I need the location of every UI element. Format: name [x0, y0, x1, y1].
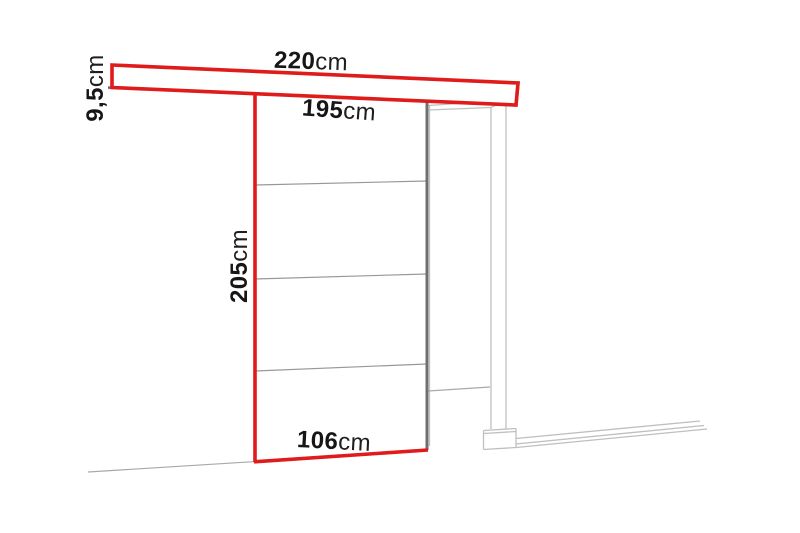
- frame-plinth-top: [484, 429, 517, 431]
- dimension-diagram: 220cm 9,5cm 195cm 205cm 106cm: [0, 0, 800, 533]
- dimension-label-upper-width: 195cm: [301, 96, 377, 125]
- baseboard-mid-line: [516, 426, 704, 445]
- baseboard-bottom-line: [516, 429, 707, 448]
- dimension-value: 195: [301, 94, 344, 124]
- floor-line-left: [88, 462, 256, 473]
- frame-plinth-step: [484, 432, 516, 434]
- diagram-drawing: [0, 0, 800, 533]
- dimension-value: 9,5: [82, 87, 109, 122]
- dimension-unit: cm: [82, 54, 109, 87]
- door-frame: [428, 101, 707, 450]
- dimension-value: 106: [296, 426, 339, 455]
- dimension-unit: cm: [338, 428, 372, 457]
- baseboard-top-line: [516, 421, 700, 439]
- dimension-unit: cm: [342, 97, 377, 126]
- frame-header-inner-line: [428, 108, 491, 111]
- floor-line-opening: [428, 387, 490, 391]
- dimension-unit: cm: [226, 229, 253, 262]
- frame-plinth-bottom: [484, 448, 517, 450]
- dimension-label-track-length: 220cm: [274, 49, 349, 76]
- dimension-unit: cm: [315, 48, 349, 76]
- dimension-value: 220: [274, 47, 316, 75]
- dimension-label-door-bottom-width: 106cm: [296, 428, 371, 456]
- dimension-label-track-height: 9,5cm: [84, 54, 108, 121]
- dimension-value: 205: [226, 262, 253, 303]
- dimension-label-door-height: 205cm: [228, 229, 252, 303]
